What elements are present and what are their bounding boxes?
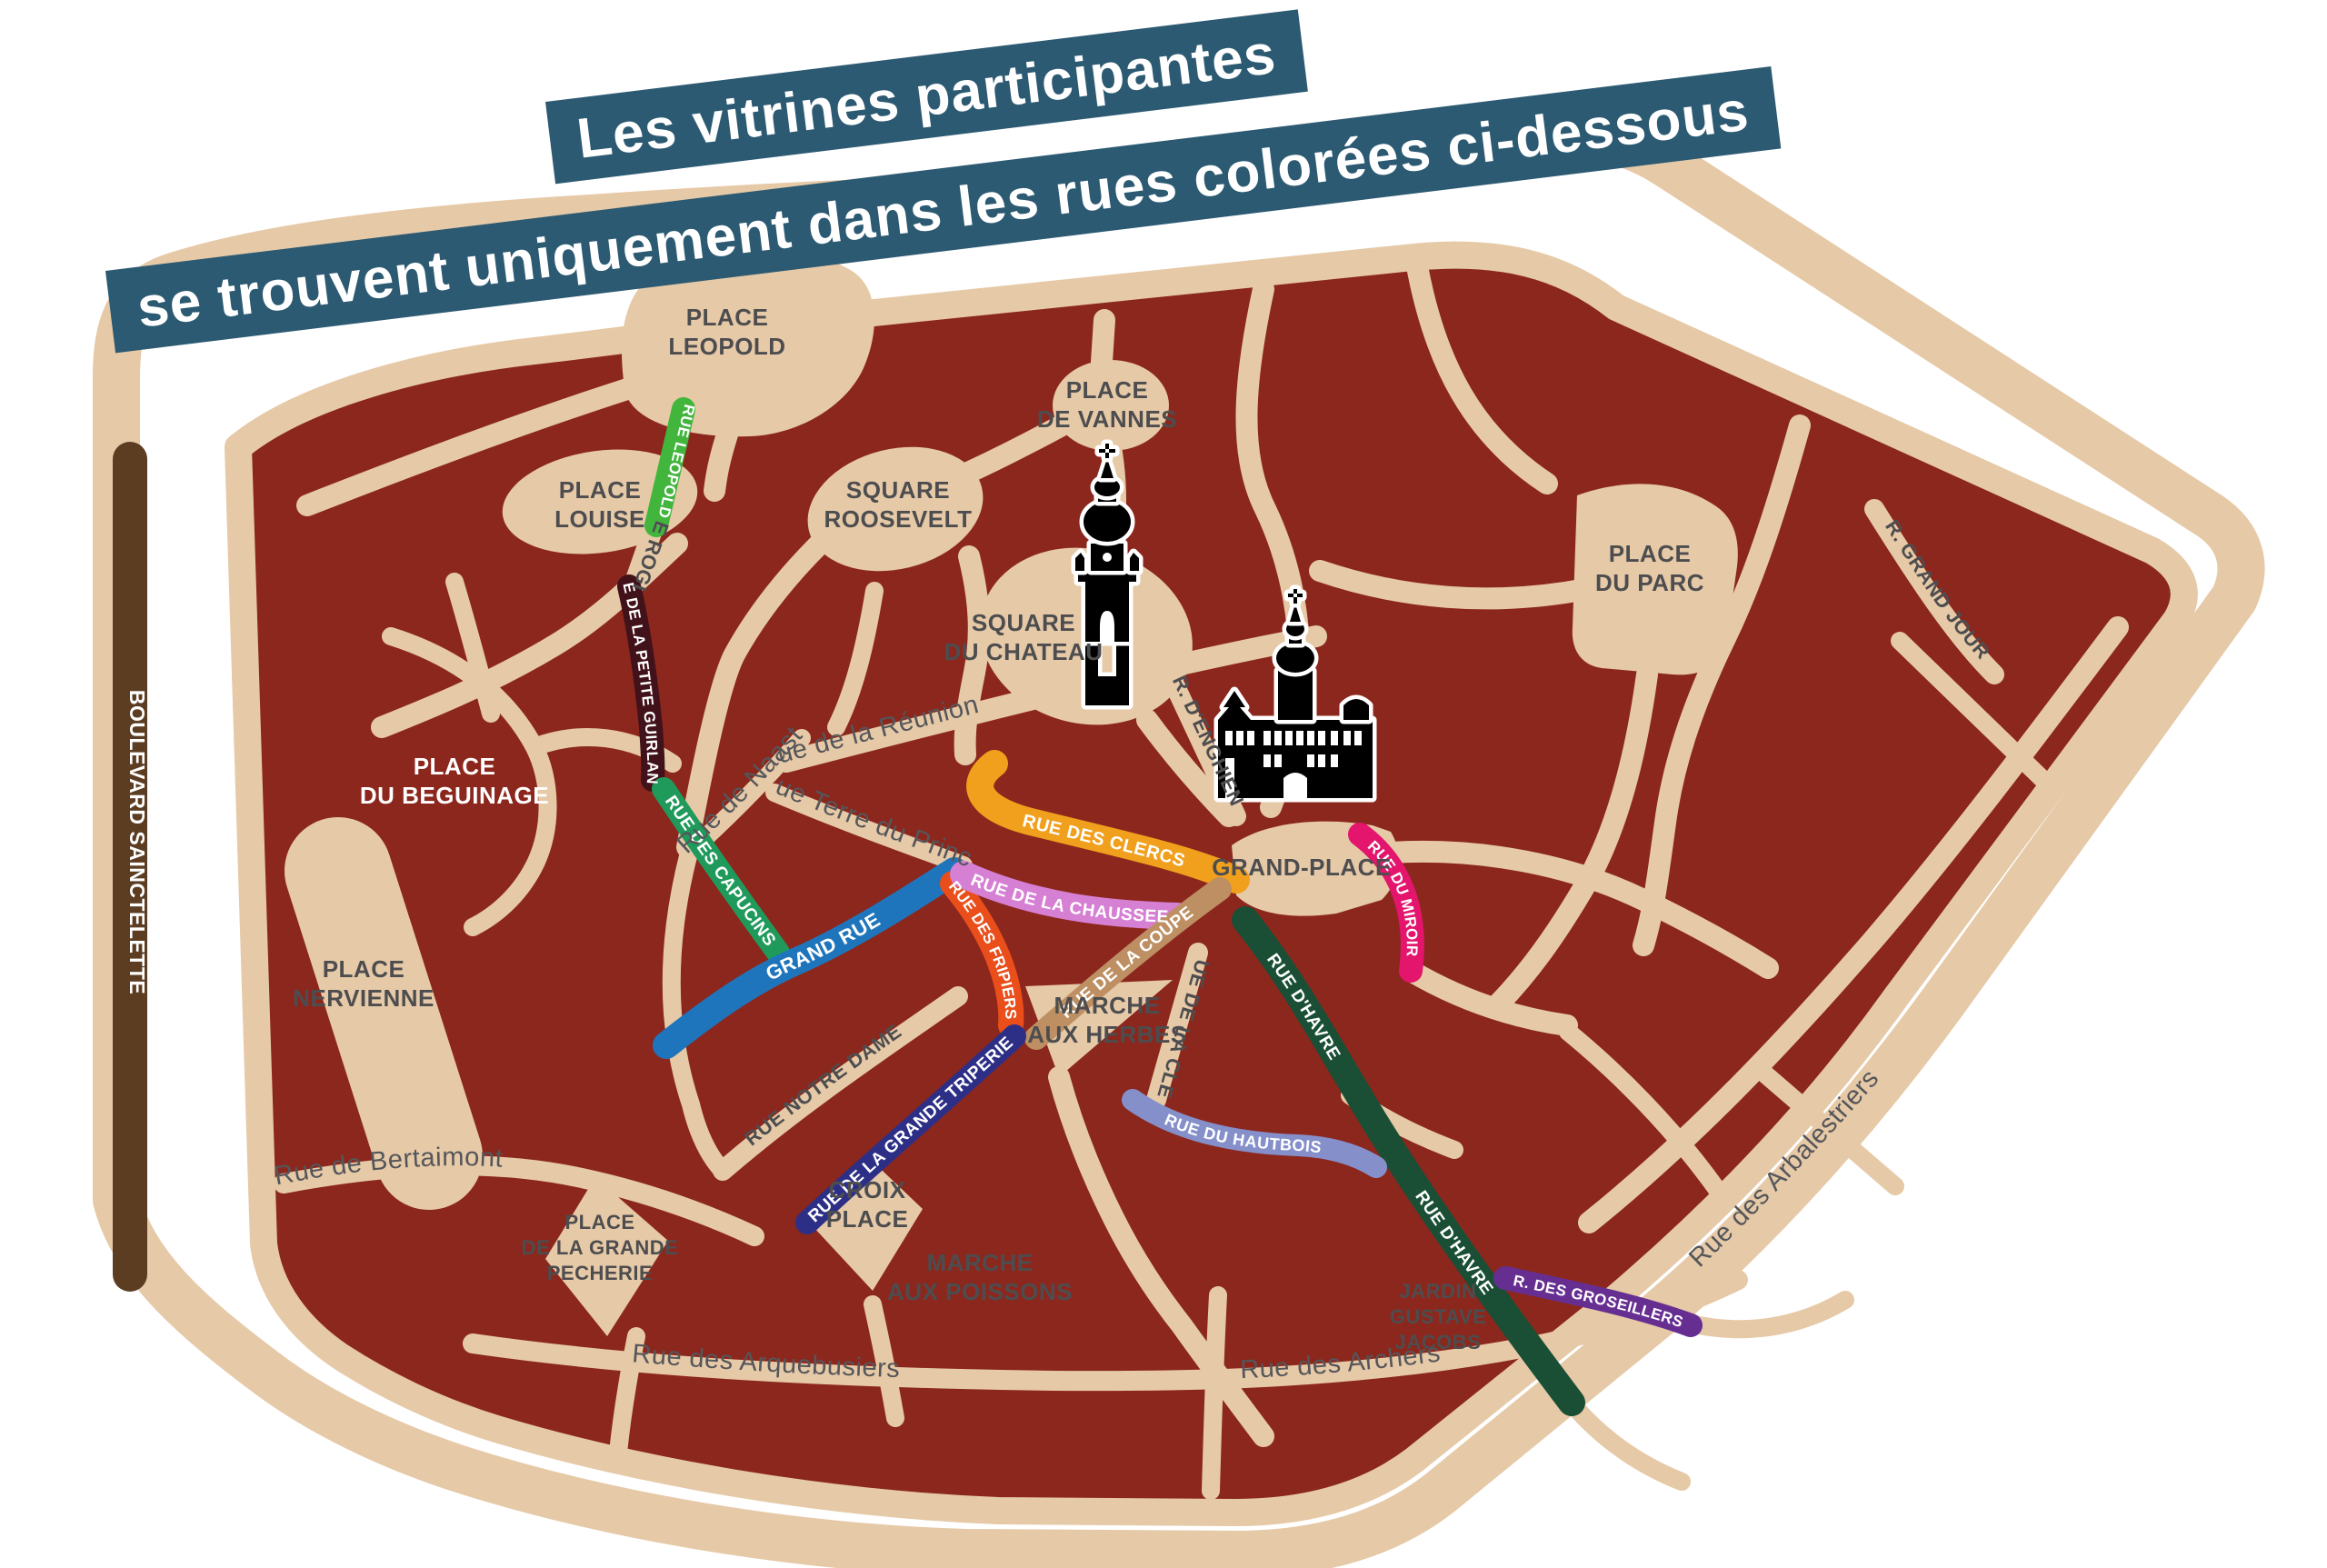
svg-text:JACOBS: JACOBS [1395,1331,1482,1353]
svg-text:AUX POISSONS: AUX POISSONS [887,1278,1073,1305]
croix-place-label: CROIX [829,1176,906,1203]
boulevard-sainctelette-label: BOULEVARD SAINCTELETTE [125,690,149,994]
place-louise-label: PLACE [559,476,642,504]
place-du-parc-label: PLACE [1609,540,1692,567]
svg-text:AUX HERBES: AUX HERBES [1027,1021,1186,1048]
place-nervienne-label: PLACE [323,955,405,983]
svg-text:GUSTAVE: GUSTAVE [1390,1305,1487,1328]
svg-text:ROOSEVELT: ROOSEVELT [824,505,973,533]
svg-text:LOUISE: LOUISE [554,505,645,533]
svg-text:DU CHATEAU: DU CHATEAU [944,638,1104,665]
city-map: RUE LEOPOLD II RUE DE LA PETITE GUIRLAND… [0,0,2327,1568]
place-de-vannes-label: PLACE [1066,376,1149,404]
square-roosevelt-label: SQUARE [846,476,950,504]
svg-text:PLACE: PLACE [826,1205,909,1233]
marche-aux-poissons-label: MARCHE [926,1249,1033,1276]
svg-text:PECHERIE: PECHERIE [547,1262,653,1284]
svg-text:DE VANNES: DE VANNES [1037,405,1177,433]
place-du-beguinage-label: PLACE [414,753,496,780]
grand-place-label: GRAND-PLACE [1212,854,1392,881]
svg-text:NERVIENNE: NERVIENNE [293,984,434,1012]
map-poster: RUE LEOPOLD II RUE DE LA PETITE GUIRLAND… [0,0,2327,1568]
square-du-chateau-label: SQUARE [972,609,1075,636]
place-leopold-label: PLACE [686,304,769,331]
svg-text:BOULEVARD SAINCTELETTE: BOULEVARD SAINCTELETTE [125,690,149,994]
place-de-la-grande-pecherie-label: PLACE [564,1211,634,1233]
marche-aux-herbes-label: MARCHE [1054,992,1160,1019]
svg-text:LEOPOLD: LEOPOLD [668,333,785,360]
svg-text:DU BEGUINAGE: DU BEGUINAGE [360,782,549,809]
svg-text:DU PARC: DU PARC [1595,569,1704,596]
svg-text:DE LA GRANDE: DE LA GRANDE [522,1236,679,1259]
jardin-gustave-jacobs-label: JARDIN [1400,1280,1477,1303]
